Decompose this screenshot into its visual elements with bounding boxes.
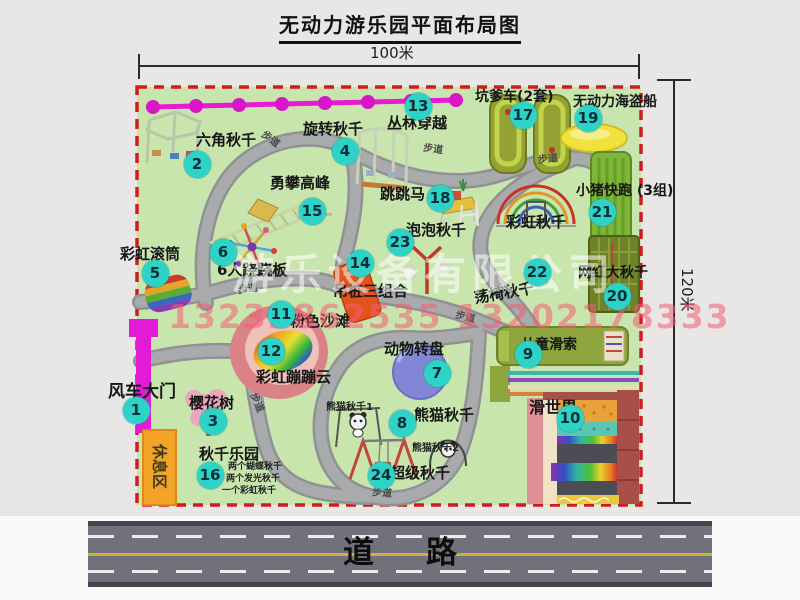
attraction-label-17: 坑爹车(2套) [475, 90, 554, 104]
walkway-label: 步道 [538, 154, 559, 166]
attraction-number-22: 22 [524, 259, 551, 286]
attraction-number-11: 11 [268, 301, 295, 328]
attraction-number-23: 23 [387, 229, 414, 256]
attraction-label-2: 六角秋千 [196, 133, 256, 148]
road: 道路 [88, 521, 712, 587]
watermark-phone: 13233862535 13202178333 [168, 300, 731, 333]
attraction-number-19: 19 [575, 105, 602, 132]
attraction-number-24: 24 [368, 462, 395, 489]
attraction-label-23: 泡泡秋千 [406, 223, 466, 238]
attraction-label-24: 超级秋千 [390, 466, 450, 481]
attraction-number-16: 16 [197, 462, 224, 489]
attraction-label-18: 跳跳马 [380, 187, 425, 202]
road-label: 道路 [88, 538, 712, 569]
attraction-number-17: 17 [510, 102, 537, 129]
attraction-number-15: 15 [299, 198, 326, 225]
walkway-label: 步道 [372, 488, 393, 499]
page-title: 无动力游乐园平面布局图 [279, 9, 521, 44]
dimension-tick-right-bottom [657, 502, 691, 504]
attraction-number-20: 20 [604, 283, 631, 310]
attraction-number-6: 6 [210, 239, 237, 266]
attraction-number-21: 21 [589, 199, 616, 226]
playground-layout-screenshot: 无动力游乐园平面布局图 100米 120米 [0, 0, 800, 600]
dimension-label-top: 100米 [370, 46, 414, 61]
dimension-tick-right-top [657, 79, 691, 81]
attraction-label-15: 勇攀高峰 [270, 176, 330, 191]
dimension-tick-top-right [638, 54, 640, 79]
rest-area-label: 休息区 [152, 443, 167, 491]
dimension-line-right [673, 79, 675, 504]
map-sublabel: 熊猫秋千1 [326, 403, 373, 413]
page-title-wrap: 无动力游乐园平面布局图 [0, 9, 800, 44]
attraction-label-7: 动物转盘 [384, 342, 444, 357]
map-sublabel: 一个彩虹秋千 [222, 487, 276, 496]
attraction-label-4: 旋转秋千 [303, 122, 363, 137]
attraction-number-12: 12 [258, 338, 285, 365]
attraction-label-5: 彩虹滚筒 [120, 247, 180, 262]
dimension-line-top [139, 65, 639, 67]
map-sublabel: 熊猫秋千2 [412, 444, 459, 454]
attraction-number-8: 8 [389, 410, 416, 437]
attraction-number-1: 1 [123, 397, 150, 424]
attraction-number-9: 9 [515, 341, 542, 368]
attraction-label-12: 彩虹蹦蹦云 [256, 370, 331, 385]
attraction-number-4: 4 [332, 138, 359, 165]
map-sublabel: 彩虹秋千 [506, 215, 566, 230]
map-sublabel: 两个发光秋千 [226, 475, 280, 484]
attraction-number-10: 10 [557, 405, 584, 432]
attraction-label-16: 秋千乐园 [199, 447, 259, 462]
attraction-number-14: 14 [347, 250, 374, 277]
attraction-number-18: 18 [427, 185, 454, 212]
dimension-tick-top-left [138, 54, 140, 79]
watermark-company: 游乐设备有限公司 [232, 254, 616, 296]
attraction-number-7: 7 [424, 360, 451, 387]
attraction-number-3: 3 [200, 408, 227, 435]
attraction-number-5: 5 [142, 260, 169, 287]
map-sublabel: 两个蝴蝶秋千 [228, 463, 282, 472]
attraction-number-13: 13 [405, 93, 432, 120]
attraction-label-8: 熊猫秋千 [414, 408, 474, 423]
attraction-number-2: 2 [184, 151, 211, 178]
attraction-label-21: 小猪快跑 (3组) [576, 184, 673, 198]
